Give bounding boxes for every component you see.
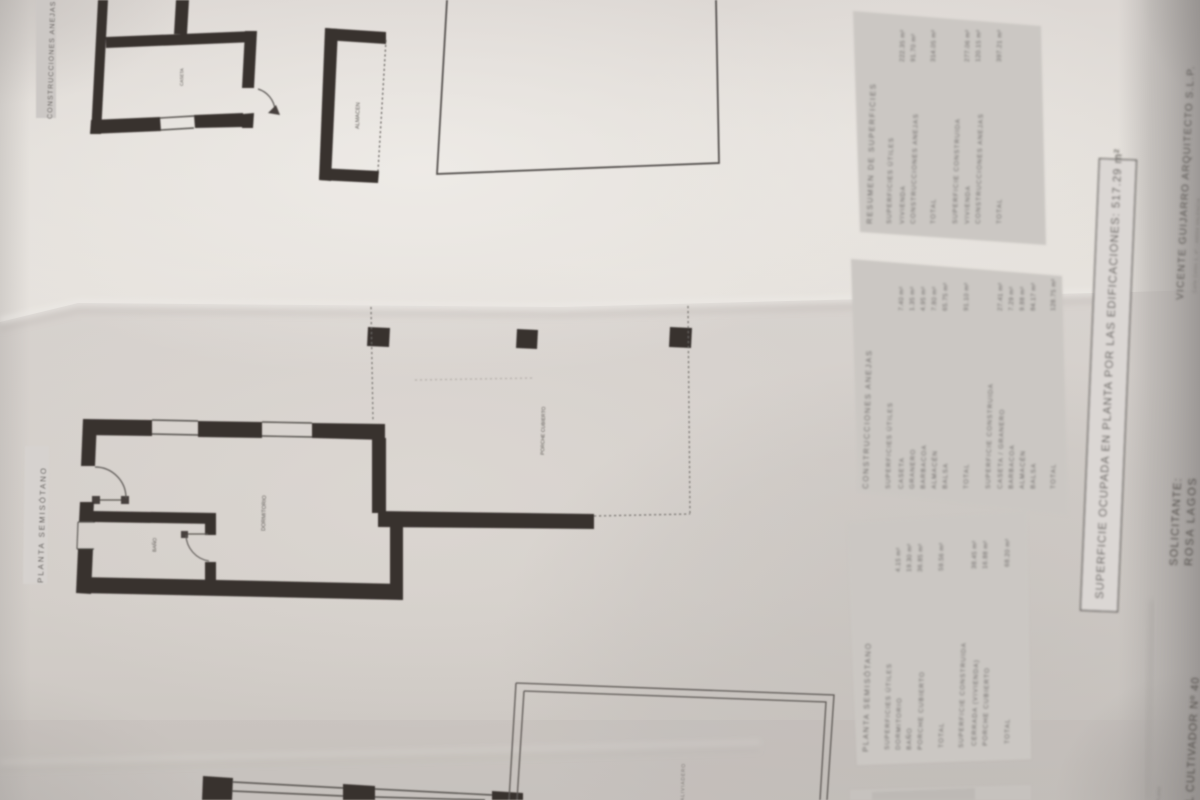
- svg-text:65.75 m²: 65.75 m²: [942, 282, 950, 311]
- svg-text:PORCHE CUBIERTO: PORCHE CUBIERTO: [540, 406, 547, 455]
- svg-text:277.06 m²: 277.06 m²: [964, 29, 972, 62]
- svg-text:38.45 m²: 38.45 m²: [971, 540, 979, 569]
- svg-text:DORMITORIO: DORMITORIO: [895, 697, 903, 750]
- svg-text:7.40 m²: 7.40 m²: [898, 286, 906, 311]
- svg-text:ALMACEN: ALMACEN: [355, 102, 362, 129]
- svg-text:397.21 m²: 397.21 m²: [996, 29, 1004, 62]
- svg-text:BARBACOA: BARBACOA: [1008, 444, 1016, 489]
- svg-text:CASETA: CASETA: [179, 68, 184, 86]
- svg-text:TOTAL: TOTAL: [1050, 463, 1058, 489]
- svg-text:DORMITORIO: DORMITORIO: [261, 495, 268, 532]
- svg-text:222.35 m²: 222.35 m²: [899, 29, 907, 62]
- svg-text:9.88 m²: 9.88 m²: [1019, 286, 1027, 311]
- svg-text:7.80 m²: 7.80 m²: [931, 286, 939, 311]
- svg-text:91.70 m²: 91.70 m²: [910, 33, 918, 62]
- svg-text:VIVIENDA: VIVIENDA: [899, 185, 907, 224]
- svg-text:59.56 m²: 59.56 m²: [938, 542, 946, 571]
- svg-text:TOTAL: TOTAL: [930, 198, 938, 224]
- svg-text:120.15 m²: 120.15 m²: [975, 29, 983, 62]
- svg-text:BALSA: BALSA: [942, 463, 950, 489]
- svg-text:ALIVIADERO: ALIVIADERO: [680, 763, 687, 800]
- svg-text:84.17 m²: 84.17 m²: [1030, 282, 1038, 311]
- svg-text:314.05 m²: 314.05 m²: [930, 29, 938, 62]
- svg-text:27.41 m²: 27.41 m²: [997, 282, 1005, 311]
- svg-text:4.15 m²: 4.15 m²: [895, 547, 903, 572]
- svg-text:7.29 m²: 7.29 m²: [1008, 286, 1016, 311]
- svg-text:BARBACOA: BARBACOA: [920, 444, 928, 489]
- svg-text:36.85 m²: 36.85 m²: [917, 543, 925, 572]
- svg-text:TOTAL: TOTAL: [996, 198, 1004, 224]
- svg-text:1.35 m²: 1.35 m²: [909, 286, 917, 311]
- svg-text:GRANERO: GRANERO: [909, 449, 917, 490]
- svg-text:TOTAL: TOTAL: [938, 722, 946, 748]
- svg-text:16.88 m²: 16.88 m²: [982, 540, 990, 569]
- svg-text:BAÑO: BAÑO: [151, 538, 158, 552]
- svg-text:19.30 m²: 19.30 m²: [906, 543, 914, 572]
- svg-text:68.20 m²: 68.20 m²: [1004, 538, 1012, 567]
- svg-text:TOTAL: TOTAL: [963, 463, 971, 489]
- svg-text:91.10 m²: 91.10 m²: [963, 282, 971, 311]
- svg-text:TOTAL: TOTAL: [1004, 718, 1012, 744]
- svg-text:128.75 m²: 128.75 m²: [1050, 278, 1058, 311]
- svg-text:BALSA: BALSA: [1030, 463, 1038, 489]
- svg-text:PLANO: PLANO: [1156, 786, 1162, 800]
- svg-text:4.95 m²: 4.95 m²: [920, 286, 928, 311]
- svg-text:CASETA: CASETA: [898, 457, 906, 489]
- svg-text:VIVIENDA: VIVIENDA: [964, 185, 972, 224]
